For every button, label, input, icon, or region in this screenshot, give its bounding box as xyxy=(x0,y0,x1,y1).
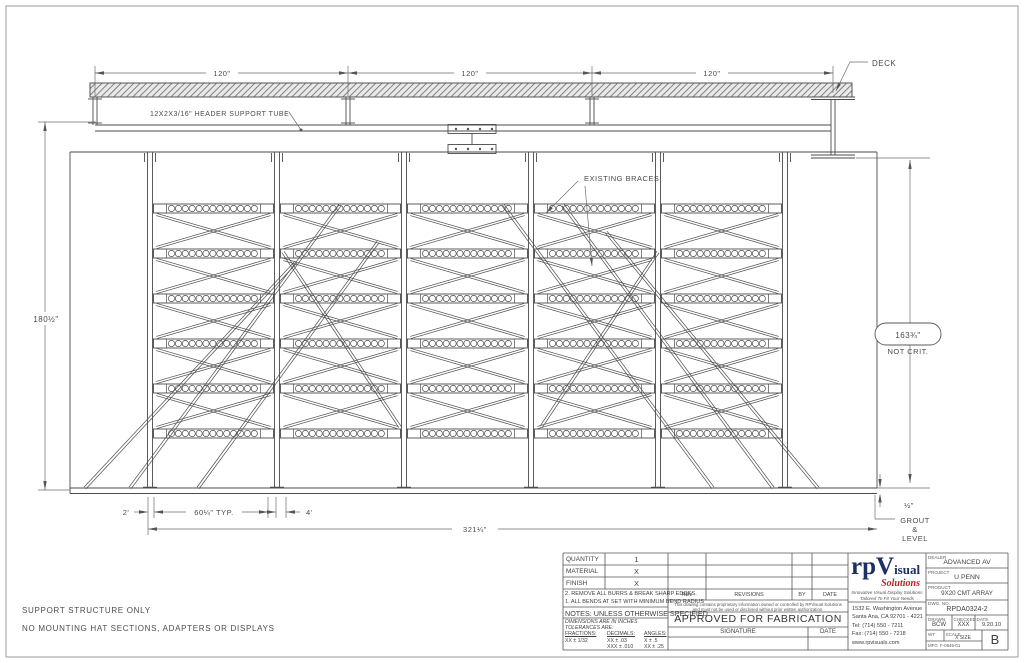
beam-perforation xyxy=(224,385,230,391)
beam-perforation xyxy=(745,295,751,301)
beam-perforation xyxy=(676,205,682,211)
beam-perforation xyxy=(244,385,250,391)
dim-overall: 321¼" xyxy=(463,525,487,534)
beam-perforation xyxy=(563,250,569,256)
address-line-1: 1532 E. Washington Avenue xyxy=(852,605,924,613)
mfg-value: F-0646-01 xyxy=(940,643,960,648)
beam-perforation xyxy=(429,430,435,436)
beam-perforation xyxy=(704,340,710,346)
beam-perforation xyxy=(450,385,456,391)
beam-perforation xyxy=(618,385,624,391)
beam-perforation xyxy=(498,295,504,301)
existing-braces-leader-2 xyxy=(585,186,592,266)
beam-perforation xyxy=(196,295,202,301)
beam-perforation xyxy=(457,340,463,346)
beam-perforation xyxy=(632,430,638,436)
logo-v: V xyxy=(876,556,894,578)
beam-perforation xyxy=(625,250,631,256)
checked-value: XXX xyxy=(952,622,975,628)
beam-perforation xyxy=(718,430,724,436)
beam-perforation xyxy=(625,340,631,346)
beam-perforation xyxy=(189,205,195,211)
dim-arrow xyxy=(908,474,911,483)
tol-fractions-label: FRACTIONS: xyxy=(565,631,596,637)
column xyxy=(402,152,407,488)
project-value: U PENN xyxy=(926,574,1008,581)
dim-offset-left: 2' xyxy=(123,508,130,517)
beam-perforation xyxy=(732,340,738,346)
beam-perforation xyxy=(471,295,477,301)
beam-perforation xyxy=(563,340,569,346)
drawn-value: BCW xyxy=(926,622,952,628)
column xyxy=(148,152,153,488)
beam-perforation xyxy=(203,340,209,346)
beam-perforation xyxy=(625,205,631,211)
beam-perforation xyxy=(739,295,745,301)
dealer-value: ADVANCED AV xyxy=(926,559,1008,566)
beam-perforation xyxy=(471,205,477,211)
beam-perforation xyxy=(491,295,497,301)
beam-perforation xyxy=(295,295,301,301)
beam-perforation xyxy=(591,295,597,301)
beam-perforation xyxy=(718,205,724,211)
beam-perforation xyxy=(464,385,470,391)
beam-perforation xyxy=(210,385,216,391)
dim-arrow xyxy=(95,71,104,74)
beam-perforation xyxy=(309,205,315,211)
beam-perforation xyxy=(618,205,624,211)
not-crit-note: NOT CRIT. xyxy=(887,347,928,356)
beam-perforation xyxy=(302,205,308,211)
beam-perforation xyxy=(203,430,209,436)
beam-perforation xyxy=(485,250,491,256)
beam-perforation xyxy=(244,295,250,301)
beam-perforation xyxy=(498,430,504,436)
footnote-no-mounting: NO MOUNTING HAT SECTIONS, ADAPTERS OR DI… xyxy=(22,624,275,633)
tol-fractions-value: XX ± 1/32 xyxy=(565,638,588,644)
beam-perforation xyxy=(429,385,435,391)
beam-perforation xyxy=(224,205,230,211)
beam-perforation xyxy=(745,430,751,436)
beam-perforation xyxy=(471,340,477,346)
beam-perforation xyxy=(704,205,710,211)
beam-perforation xyxy=(443,430,449,436)
beam-perforation xyxy=(683,250,689,256)
beam-perforation xyxy=(182,205,188,211)
beam-perforation xyxy=(478,295,484,301)
bom-quantity-value: 1 xyxy=(605,555,668,564)
dim-bay-typ: 60¼" TYP. xyxy=(194,508,233,517)
deck-hatch xyxy=(90,83,852,97)
beam-perforation xyxy=(168,430,174,436)
beam-perforation xyxy=(711,205,717,211)
beam-perforation xyxy=(358,295,364,301)
dim-arrow xyxy=(148,527,157,530)
beam-perforation xyxy=(725,205,731,211)
beam-perforation xyxy=(612,340,618,346)
beam-perforation xyxy=(491,205,497,211)
column xyxy=(275,152,280,488)
beam-perforation xyxy=(364,430,370,436)
beam-perforation xyxy=(732,430,738,436)
beam-perforation xyxy=(739,385,745,391)
beam-perforation xyxy=(217,430,223,436)
grout-gap-dim: ½" xyxy=(904,501,914,510)
company-address: 1532 E. Washington Avenue Santa Ana, CA … xyxy=(852,605,924,647)
beam-perforation xyxy=(436,340,442,346)
beam-perforation xyxy=(570,340,576,346)
beam-perforation xyxy=(189,430,195,436)
dim-arrow xyxy=(878,479,881,488)
beam-perforation xyxy=(364,295,370,301)
beam-perforation xyxy=(251,295,257,301)
beam-perforation xyxy=(175,430,181,436)
beam-perforation xyxy=(358,430,364,436)
beam-perforation xyxy=(632,340,638,346)
beam-perforation xyxy=(295,430,301,436)
mfg-label: MFG xyxy=(928,643,938,648)
beam-perforation xyxy=(683,385,689,391)
beam-perforation xyxy=(725,295,731,301)
beam-perforation xyxy=(718,340,724,346)
beam-perforation xyxy=(505,295,511,301)
beam-perforation xyxy=(175,340,181,346)
span-dim-3: 120" xyxy=(703,69,720,78)
product-value: 9X20 CMT ARRAY xyxy=(926,590,1008,597)
grout-note-1: GROUT xyxy=(900,516,930,525)
beam-perforation xyxy=(598,295,604,301)
beam-perforation xyxy=(196,205,202,211)
beam-perforation xyxy=(429,295,435,301)
beam-perforation xyxy=(371,340,377,346)
beam-perforation xyxy=(309,385,315,391)
beam-perforation xyxy=(295,250,301,256)
beam-perforation xyxy=(422,205,428,211)
beam-perforation xyxy=(739,340,745,346)
beam-perforation xyxy=(505,430,511,436)
beam-perforation xyxy=(570,385,576,391)
beam-perforation xyxy=(697,430,703,436)
beam-perforation xyxy=(429,250,435,256)
beam-perforation xyxy=(196,385,202,391)
column xyxy=(783,152,788,488)
beam-perforation xyxy=(378,430,384,436)
beam-perforation xyxy=(182,385,188,391)
rev-value: B xyxy=(982,632,1008,647)
beam-perforation xyxy=(196,340,202,346)
beam-perforation xyxy=(337,430,343,436)
beam-perforation xyxy=(577,385,583,391)
beam-perforation xyxy=(450,430,456,436)
beam-perforation xyxy=(210,250,216,256)
beam-perforation xyxy=(676,250,682,256)
beam-perforation xyxy=(316,205,322,211)
proprietary-note: This drawing contains proprietary inform… xyxy=(670,602,846,612)
beam-perforation xyxy=(618,430,624,436)
beam-perforation xyxy=(443,295,449,301)
footnote-support-only: SUPPORT STRUCTURE ONLY xyxy=(22,606,151,615)
beam-perforation xyxy=(316,250,322,256)
beam-perforation xyxy=(739,430,745,436)
beam-perforation xyxy=(189,250,195,256)
beam-perforation xyxy=(676,385,682,391)
beam-perforation xyxy=(457,430,463,436)
beam-perforation xyxy=(203,250,209,256)
beam-perforation xyxy=(697,385,703,391)
existing-brace xyxy=(504,204,714,487)
beam-perforation xyxy=(323,385,329,391)
beam-perforation xyxy=(549,250,555,256)
beam-perforation xyxy=(210,205,216,211)
beam-perforation xyxy=(683,205,689,211)
beam-perforation xyxy=(378,250,384,256)
signature-date-label: DATE xyxy=(808,628,848,635)
beam-perforation xyxy=(745,385,751,391)
beam-perforation xyxy=(591,430,597,436)
beam-perforation xyxy=(549,430,555,436)
beam-perforation xyxy=(485,340,491,346)
dim-gap: 4' xyxy=(306,508,313,517)
beam-perforation xyxy=(577,250,583,256)
beam-perforation xyxy=(436,205,442,211)
beam-perforation xyxy=(224,295,230,301)
beam-perforation xyxy=(549,340,555,346)
beam-perforation xyxy=(302,295,308,301)
beam-perforation xyxy=(464,250,470,256)
beam-perforation xyxy=(189,385,195,391)
tol-angles-label: ANGLES: xyxy=(644,631,667,637)
beam-perforation xyxy=(443,205,449,211)
beam-perforation xyxy=(485,385,491,391)
beam-perforation xyxy=(676,295,682,301)
beam-perforation xyxy=(471,385,477,391)
beam-perforation xyxy=(704,295,710,301)
beam-perforation xyxy=(556,385,562,391)
beam-perforation xyxy=(330,430,336,436)
leader-arrow xyxy=(590,258,593,266)
beam-perforation xyxy=(237,430,243,436)
beam-perforation xyxy=(485,430,491,436)
beam-perforation xyxy=(457,205,463,211)
leader-dot xyxy=(300,129,303,132)
beam-perforation xyxy=(351,250,357,256)
beam-perforation xyxy=(351,430,357,436)
beam-perforation xyxy=(505,250,511,256)
beam-perforation xyxy=(450,340,456,346)
beam-perforation xyxy=(711,295,717,301)
beam-perforation xyxy=(471,430,477,436)
beam-perforation xyxy=(759,205,765,211)
beam-perforation xyxy=(323,340,329,346)
bom-finish-label: FINISH xyxy=(566,580,587,587)
beam-perforation xyxy=(217,385,223,391)
revisions-col-header: REVISIONS xyxy=(706,592,792,598)
beam-perforation xyxy=(556,205,562,211)
product-label: PRODUCT xyxy=(928,585,951,590)
tol-decimals-label: DECIMALS: xyxy=(607,631,635,637)
beam-perforation xyxy=(556,250,562,256)
beam-perforation xyxy=(690,430,696,436)
beam-perforation xyxy=(732,205,738,211)
beam-perforation xyxy=(752,340,758,346)
beam-perforation xyxy=(231,295,237,301)
beam-perforation xyxy=(725,340,731,346)
beam-perforation xyxy=(168,385,174,391)
dim-arrow xyxy=(824,71,833,74)
beam-perforation xyxy=(378,340,384,346)
beam-perforation xyxy=(358,250,364,256)
beam-perforation xyxy=(295,340,301,346)
beam-perforation xyxy=(683,430,689,436)
beam-perforation xyxy=(443,250,449,256)
beam-perforation xyxy=(168,295,174,301)
beam-perforation xyxy=(316,385,322,391)
by-col-header: BY xyxy=(792,592,812,598)
beam-perforation xyxy=(556,430,562,436)
dim-arrow xyxy=(139,510,148,513)
address-line-2: Santa Ana, CA 92701 - 4221 xyxy=(852,613,924,621)
height-dim-right: 163¾" xyxy=(895,331,920,340)
beam-perforation xyxy=(237,295,243,301)
beam-perforation xyxy=(251,205,257,211)
beam-perforation xyxy=(224,430,230,436)
beam-perforation xyxy=(718,250,724,256)
address-line-4: Fax: (714) 550 - 7218 xyxy=(852,630,924,638)
beam-perforation xyxy=(676,430,682,436)
beam-perforation xyxy=(244,250,250,256)
beam-perforation xyxy=(436,430,442,436)
beam-perforation xyxy=(182,340,188,346)
beam-perforation xyxy=(697,205,703,211)
beam-perforation xyxy=(364,340,370,346)
beam-perforation xyxy=(351,340,357,346)
beam-perforation xyxy=(711,430,717,436)
logo-tagline-2: Tailored To Fit Your Needs xyxy=(848,596,926,601)
beam-perforation xyxy=(752,430,758,436)
beam-perforation xyxy=(457,250,463,256)
beam-perforation xyxy=(759,250,765,256)
beam-perforation xyxy=(478,250,484,256)
beam-perforation xyxy=(745,340,751,346)
beam-perforation xyxy=(752,385,758,391)
beam-perforation xyxy=(570,205,576,211)
deck-label: DECK xyxy=(872,59,896,68)
beam-perforation xyxy=(330,340,336,346)
beam-perforation xyxy=(422,385,428,391)
dwg-no-value: RPDA0324-2 xyxy=(926,606,1008,613)
dim-arrow xyxy=(259,510,268,513)
beam-perforation xyxy=(217,250,223,256)
beam-perforation xyxy=(378,385,384,391)
address-line-3: Tel: (714) 550 - 7211 xyxy=(852,622,924,630)
beam-perforation xyxy=(450,250,456,256)
beam-perforation xyxy=(337,250,343,256)
existing-brace xyxy=(199,243,379,489)
beam-perforation xyxy=(725,385,731,391)
dim-arrow xyxy=(583,71,592,74)
grout-note-2: & xyxy=(912,525,918,534)
beam-perforation xyxy=(237,385,243,391)
beam-perforation xyxy=(605,295,611,301)
beam-perforation xyxy=(436,385,442,391)
beam-perforation xyxy=(598,430,604,436)
bom-quantity-label: QUANTITY xyxy=(566,556,599,563)
beam-perforation xyxy=(739,250,745,256)
beam-perforation xyxy=(612,295,618,301)
rpv-logo: rpVisual xyxy=(851,556,920,578)
beam-perforation xyxy=(605,385,611,391)
beam-perforation xyxy=(739,205,745,211)
beam-perforation xyxy=(584,340,590,346)
beam-perforation xyxy=(491,340,497,346)
beam-perforation xyxy=(752,295,758,301)
beam-perforation xyxy=(323,205,329,211)
dim-arrow xyxy=(908,160,911,169)
beam-perforation xyxy=(690,250,696,256)
beam-perforation xyxy=(491,250,497,256)
beam-perforation xyxy=(759,295,765,301)
beam-perforation xyxy=(584,430,590,436)
beam-perforation xyxy=(632,250,638,256)
beam-perforation xyxy=(549,295,555,301)
beam-perforation xyxy=(457,295,463,301)
beam-perforation xyxy=(505,340,511,346)
beam-perforation xyxy=(556,295,562,301)
beam-perforation xyxy=(591,205,597,211)
beam-perforation xyxy=(491,385,497,391)
beam-perforation xyxy=(224,340,230,346)
beam-perforation xyxy=(182,430,188,436)
beam-perforation xyxy=(196,430,202,436)
beam-perforation xyxy=(168,205,174,211)
beam-perforation xyxy=(351,205,357,211)
dim-arrow xyxy=(154,510,163,513)
beam-perforation xyxy=(690,340,696,346)
beam-perforation xyxy=(316,430,322,436)
beam-perforation xyxy=(422,340,428,346)
beam-perforation xyxy=(584,250,590,256)
beam-perforation xyxy=(632,205,638,211)
beam-perforation xyxy=(351,295,357,301)
date-col-header: DATE xyxy=(812,592,848,598)
beam-perforation xyxy=(478,205,484,211)
beam-perforation xyxy=(570,430,576,436)
beam-perforation xyxy=(498,340,504,346)
beam-perforation xyxy=(612,430,618,436)
beam-perforation xyxy=(676,340,682,346)
beam-perforation xyxy=(450,205,456,211)
beam-perforation xyxy=(612,205,618,211)
beam-perforation xyxy=(231,430,237,436)
existing-braces-label: EXISTING BRACES xyxy=(584,174,659,183)
beam-perforation xyxy=(371,205,377,211)
beam-perforation xyxy=(295,205,301,211)
beam-perforation xyxy=(618,250,624,256)
beam-perforation xyxy=(759,340,765,346)
beam-perforation xyxy=(337,340,343,346)
beam-perforation xyxy=(759,385,765,391)
beam-perforation xyxy=(498,385,504,391)
beam-perforation xyxy=(210,340,216,346)
beam-perforation xyxy=(302,430,308,436)
beam-perforation xyxy=(478,430,484,436)
beam-perforation xyxy=(330,205,336,211)
beam-perforation xyxy=(485,295,491,301)
beam-perforation xyxy=(464,205,470,211)
beam-perforation xyxy=(556,340,562,346)
beam-perforation xyxy=(725,430,731,436)
dim-arrow xyxy=(339,71,348,74)
